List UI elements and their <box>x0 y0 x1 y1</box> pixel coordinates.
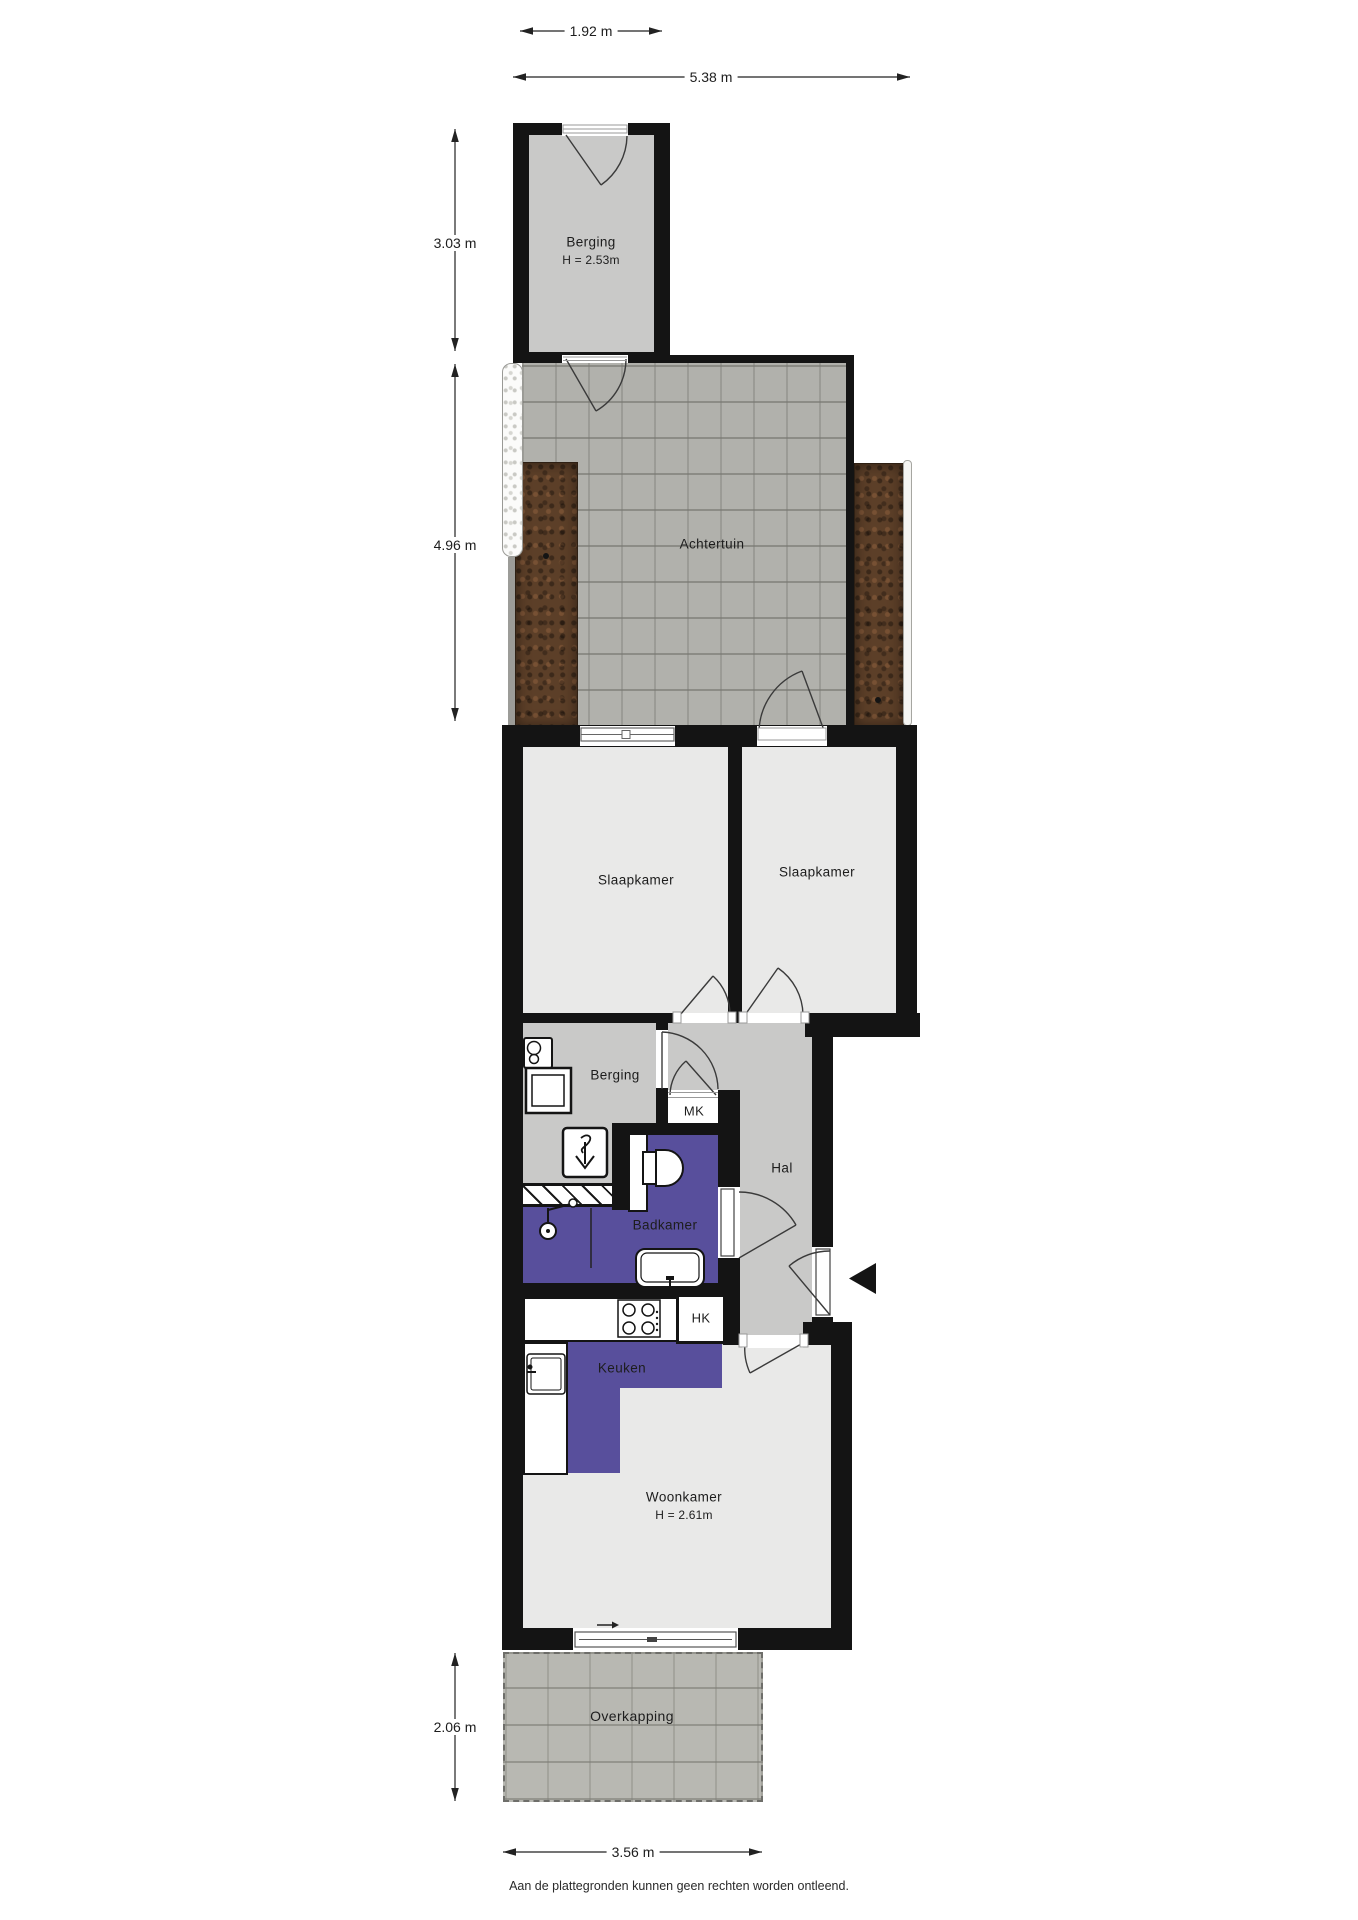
kitchen-floor-column <box>568 1388 620 1473</box>
label-mk: MK <box>684 1104 704 1119</box>
garden-fence-right <box>903 460 912 726</box>
bathroom-door-opening <box>718 1187 740 1258</box>
label-garden: Achtertuin <box>680 537 745 552</box>
bedroom-right-floor <box>742 747 896 1013</box>
garden-wall-left-thin <box>508 557 515 727</box>
wall-step-block <box>805 1013 920 1037</box>
disclaimer-text: Aan de plattegronden kunnen geen rechten… <box>509 1879 849 1893</box>
dim-garden-width: 5.38 m <box>685 69 738 85</box>
storage-step-hatch <box>523 1183 620 1207</box>
label-bedroom-right: Slaapkamer <box>779 865 855 880</box>
wall-hk-right <box>723 1295 740 1345</box>
wall-bedroom-divider <box>728 747 742 1023</box>
kitchen-counter-top <box>523 1297 678 1342</box>
wall-right-upper <box>896 725 917 1037</box>
shed-door-opening <box>562 123 628 136</box>
label-living-height: H = 2.61m <box>655 1508 713 1522</box>
label-canopy: Overkapping <box>590 1708 674 1724</box>
bedroom-left-door-opening <box>677 1013 732 1023</box>
garden-fence-left <box>502 363 523 557</box>
wall-bathroom-left <box>612 1133 628 1210</box>
mk-door-opening <box>668 1090 718 1100</box>
bathroom-pilaster <box>628 1133 648 1212</box>
front-door-opening <box>812 1247 833 1317</box>
label-shed-height: H = 2.53m <box>562 253 620 267</box>
dim-shed-depth: 3.03 m <box>429 235 482 251</box>
wall-bathroom-bottom <box>502 1283 740 1297</box>
dim-shed-width: 1.92 m <box>565 23 618 39</box>
label-shed: Berging <box>566 235 615 250</box>
label-kitchen: Keuken <box>598 1361 646 1376</box>
garden-bed-left <box>515 462 578 727</box>
label-living: Woonkamer <box>646 1490 722 1505</box>
dim-canopy-width: 3.56 m <box>607 1844 660 1860</box>
storage-door-opening <box>656 1030 668 1088</box>
label-bathroom: Badkamer <box>633 1218 698 1233</box>
window-opening-garden <box>580 726 675 746</box>
label-hall: Hal <box>771 1161 792 1176</box>
backdoor-opening <box>757 726 827 746</box>
wall-living-right <box>831 1322 852 1650</box>
bedroom-right-door-opening <box>742 1013 805 1023</box>
kitchen-counter-left <box>523 1342 568 1475</box>
entrance-arrow-icon <box>849 1263 876 1294</box>
garden-door-opening <box>562 355 628 363</box>
wall-bedroom-bottom-mid <box>732 1013 742 1023</box>
label-bedroom-left: Slaapkamer <box>598 873 674 888</box>
label-hk: HK <box>692 1311 711 1326</box>
floor-plan: 1.92 m 5.38 m 3.03 m 4.96 m 2.06 m 3.56 … <box>0 0 1358 1920</box>
wall-bedroom-bottom-left <box>523 1013 677 1023</box>
label-storage: Berging <box>590 1068 639 1083</box>
hall-living-door-opening <box>742 1335 803 1348</box>
garden-wall-right <box>846 355 854 727</box>
wall-house-top <box>502 725 917 747</box>
dim-canopy-depth: 2.06 m <box>429 1719 482 1735</box>
sliding-door-opening <box>573 1628 738 1650</box>
wall-left-main <box>502 725 523 1650</box>
dim-garden-depth: 4.96 m <box>429 537 482 553</box>
garden-bed-right <box>854 463 904 727</box>
canopy-paving <box>503 1652 763 1802</box>
